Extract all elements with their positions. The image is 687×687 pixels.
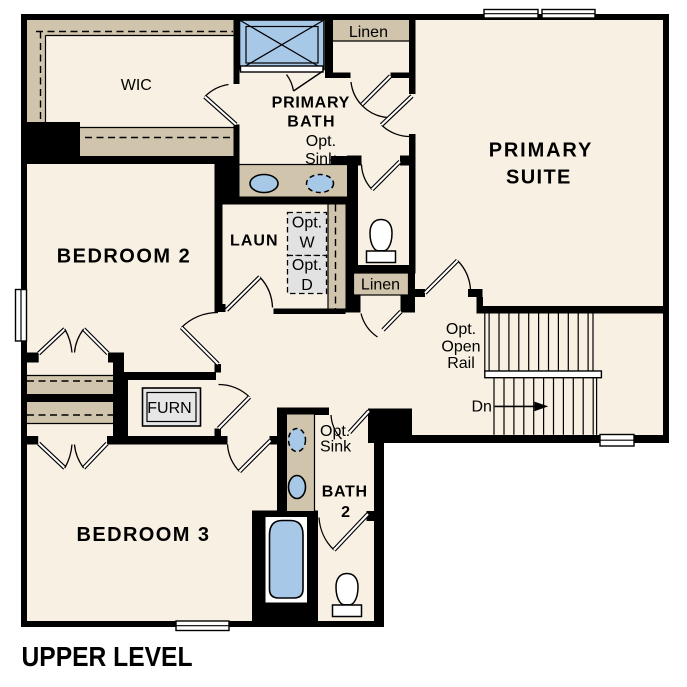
svg-text:2: 2	[341, 504, 350, 521]
svg-text:BATH: BATH	[322, 484, 367, 501]
svg-text:Sink: Sink	[305, 151, 337, 168]
svg-text:Opt.: Opt.	[292, 215, 322, 232]
svg-text:Linen: Linen	[361, 277, 400, 294]
svg-text:BATH: BATH	[287, 114, 334, 131]
svg-text:Open: Open	[441, 338, 480, 355]
svg-text:Opt.: Opt.	[320, 423, 350, 440]
svg-text:Linen: Linen	[349, 24, 388, 41]
svg-text:Opt.: Opt.	[446, 321, 476, 338]
svg-text:PRIMARY: PRIMARY	[272, 95, 350, 112]
svg-text:LAUN: LAUN	[230, 233, 277, 250]
svg-text:Sink: Sink	[320, 438, 352, 455]
svg-text:Opt.: Opt.	[306, 133, 336, 150]
svg-text:D: D	[301, 277, 313, 294]
svg-text:Rail: Rail	[447, 355, 475, 372]
svg-text:W: W	[299, 235, 315, 252]
svg-text:WIC: WIC	[121, 77, 152, 94]
svg-text:FURN: FURN	[147, 400, 191, 417]
svg-text:BEDROOM 3: BEDROOM 3	[76, 524, 209, 546]
svg-text:BEDROOM 2: BEDROOM 2	[57, 246, 190, 268]
svg-text:UPPER LEVEL: UPPER LEVEL	[22, 641, 193, 672]
svg-text:Dn: Dn	[472, 398, 492, 415]
svg-text:Opt.: Opt.	[292, 257, 322, 274]
svg-text:SUITE: SUITE	[506, 167, 570, 189]
